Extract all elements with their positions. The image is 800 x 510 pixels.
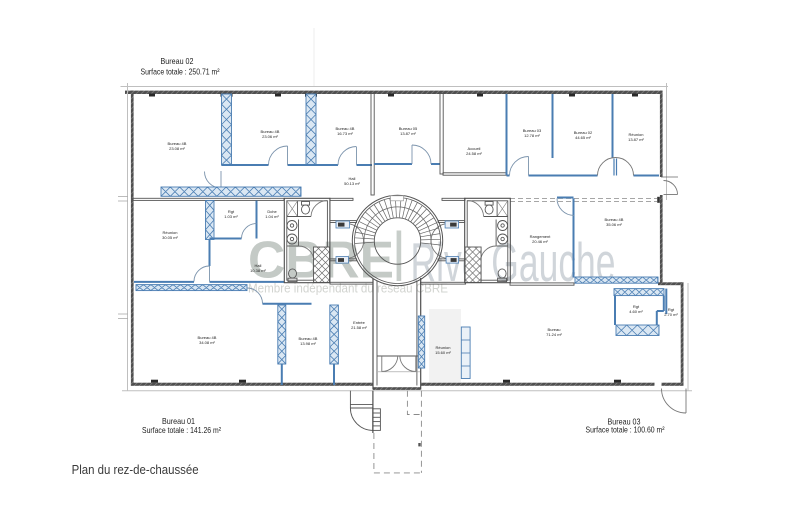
svg-text:Surface totale : 250.71 m²: Surface totale : 250.71 m² [141, 67, 220, 77]
svg-text:Plan du rez-de-chaussée: Plan du rez-de-chaussée [72, 463, 199, 477]
svg-text:23.06 m²: 23.06 m² [262, 134, 278, 139]
svg-text:1.04 m²: 1.04 m² [265, 214, 279, 219]
svg-text:23.08 m²: 23.08 m² [169, 146, 185, 151]
svg-text:10.38 m²: 10.38 m² [250, 268, 266, 273]
svg-text:35.06 m²: 35.06 m² [606, 222, 622, 227]
svg-text:4.60 m²: 4.60 m² [629, 309, 643, 314]
svg-text:24.58 m²: 24.58 m² [466, 151, 482, 156]
svg-text:1.03 m²: 1.03 m² [224, 214, 238, 219]
svg-text:16.73 m²: 16.73 m² [337, 131, 353, 136]
svg-text:13.87 m²: 13.87 m² [400, 131, 416, 136]
svg-text:13.98 m²: 13.98 m² [300, 341, 316, 346]
svg-text:12.78 m²: 12.78 m² [524, 133, 540, 138]
svg-text:Membre indépendant du réseau C: Membre indépendant du réseau CBRE [248, 282, 448, 296]
svg-text:30.05 m²: 30.05 m² [162, 235, 178, 240]
svg-text:Surface totale : 141.26 m²: Surface totale : 141.26 m² [142, 425, 221, 435]
svg-text:13.87 m²: 13.87 m² [628, 137, 644, 142]
svg-text:71.24 m²: 71.24 m² [546, 332, 562, 337]
svg-text:44.65 m²: 44.65 m² [575, 135, 591, 140]
svg-text:Bureau 02: Bureau 02 [161, 56, 194, 66]
svg-text:Surface totale : 100.60 m²: Surface totale : 100.60 m² [586, 425, 665, 435]
svg-text:2.70 m²: 2.70 m² [664, 312, 678, 317]
svg-text:34.08 m²: 34.08 m² [199, 340, 215, 345]
svg-text:21.58 m²: 21.58 m² [351, 325, 367, 330]
svg-text:50.13 m²: 50.13 m² [344, 181, 360, 186]
svg-text:20.46 m²: 20.46 m² [532, 239, 548, 244]
svg-text:15.60 m²: 15.60 m² [435, 350, 451, 355]
